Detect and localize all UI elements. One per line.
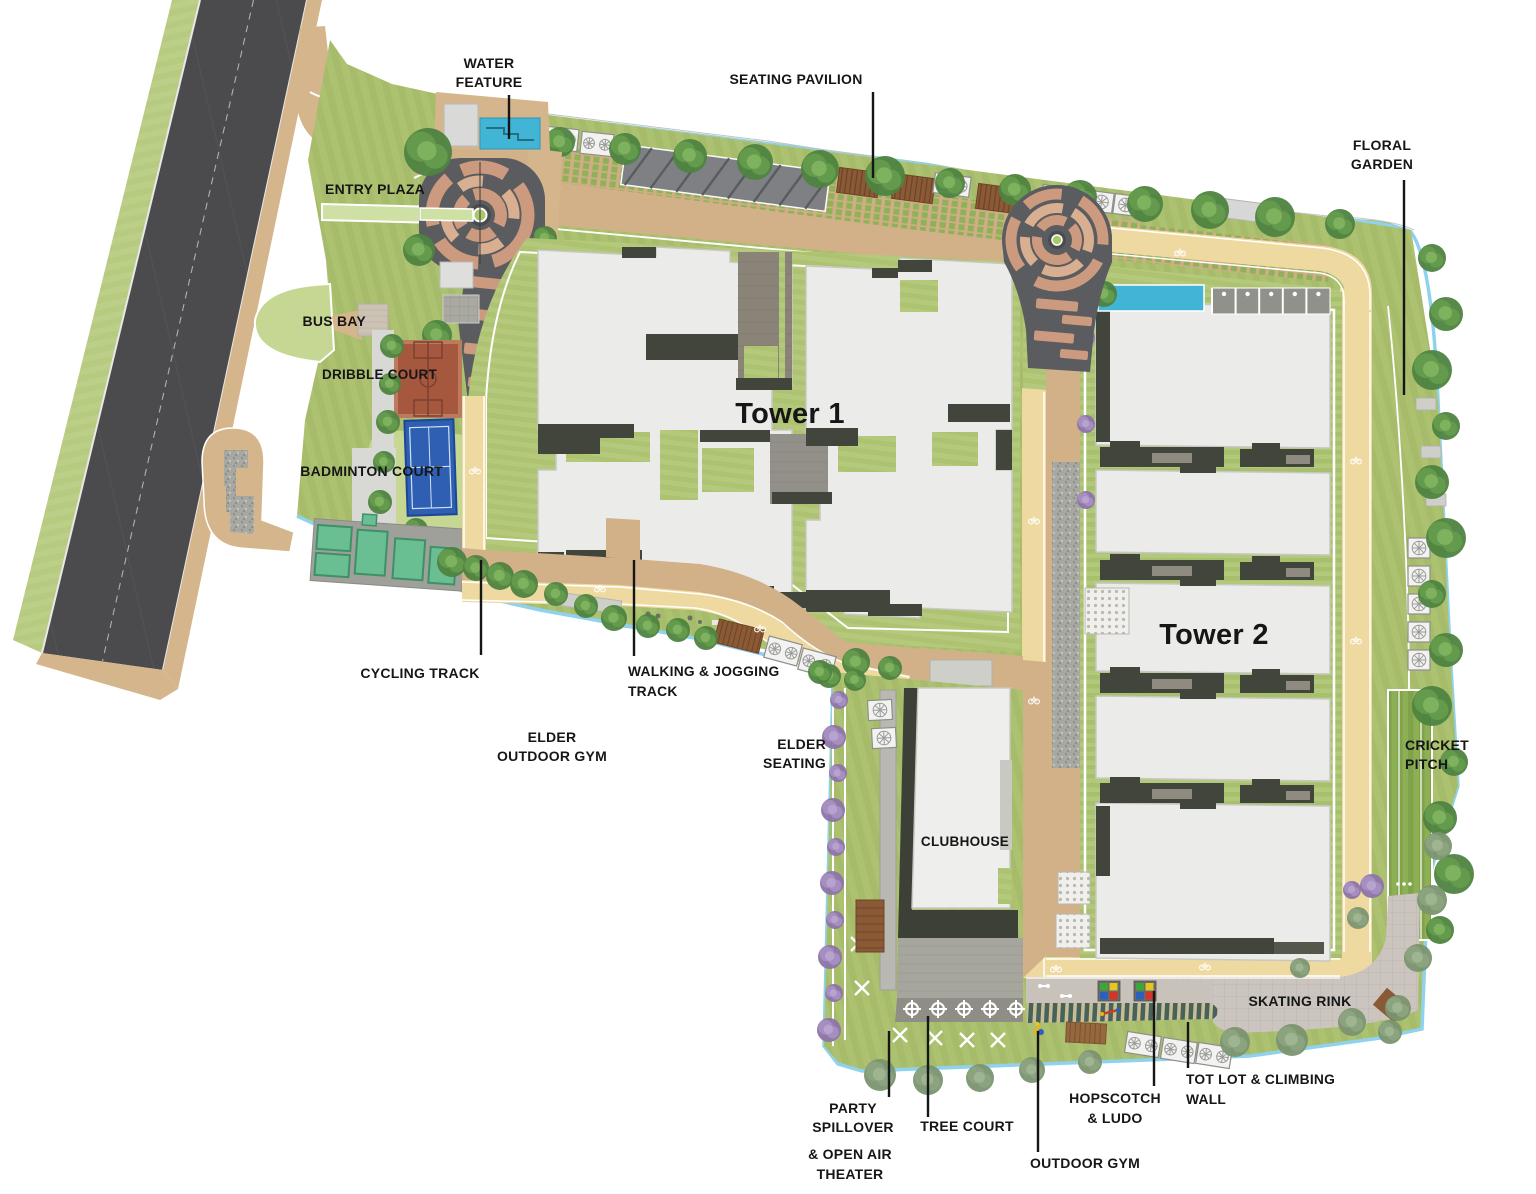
svg-text:DRIBBLE COURT: DRIBBLE COURT bbox=[322, 367, 437, 382]
svg-text:BUS BAY: BUS BAY bbox=[303, 313, 367, 329]
svg-text:& OPEN AIR: & OPEN AIR bbox=[808, 1146, 892, 1162]
svg-text:TOT LOT & CLIMBING: TOT LOT & CLIMBING bbox=[1186, 1072, 1335, 1087]
svg-text:FEATURE: FEATURE bbox=[456, 74, 523, 90]
svg-text:HOPSCOTCH: HOPSCOTCH bbox=[1069, 1090, 1161, 1106]
svg-text:TRACK: TRACK bbox=[628, 684, 678, 699]
svg-text:TREE COURT: TREE COURT bbox=[920, 1118, 1014, 1134]
svg-text:WATER: WATER bbox=[464, 55, 515, 71]
svg-text:SPILLOVER: SPILLOVER bbox=[812, 1119, 894, 1135]
svg-text:WALKING & JOGGING: WALKING & JOGGING bbox=[628, 664, 779, 679]
svg-text:BADMINTON COURT: BADMINTON COURT bbox=[300, 463, 443, 479]
svg-text:WALL: WALL bbox=[1186, 1092, 1226, 1107]
svg-text:FLORAL: FLORAL bbox=[1353, 137, 1411, 153]
svg-text:THEATER: THEATER bbox=[817, 1166, 884, 1182]
svg-text:ELDER: ELDER bbox=[777, 736, 826, 752]
svg-text:CLUBHOUSE: CLUBHOUSE bbox=[921, 834, 1009, 849]
svg-text:& LUDO: & LUDO bbox=[1087, 1110, 1142, 1126]
svg-text:SEATING PAVILION: SEATING PAVILION bbox=[729, 71, 862, 87]
svg-text:Tower 2: Tower 2 bbox=[1159, 619, 1269, 651]
svg-text:PITCH: PITCH bbox=[1405, 756, 1448, 772]
svg-text:ENTRY PLAZA: ENTRY PLAZA bbox=[325, 181, 425, 197]
svg-text:CYCLING TRACK: CYCLING TRACK bbox=[360, 665, 479, 681]
svg-text:OUTDOOR GYM: OUTDOOR GYM bbox=[497, 748, 607, 764]
svg-text:CRICKET: CRICKET bbox=[1405, 737, 1469, 753]
svg-text:ELDER: ELDER bbox=[528, 729, 577, 745]
svg-text:PARTY: PARTY bbox=[829, 1100, 877, 1116]
svg-text:SEATING: SEATING bbox=[763, 755, 826, 771]
svg-text:OUTDOOR GYM: OUTDOOR GYM bbox=[1030, 1155, 1140, 1171]
svg-text:GARDEN: GARDEN bbox=[1351, 156, 1413, 172]
svg-text:SKATING RINK: SKATING RINK bbox=[1248, 993, 1351, 1009]
svg-text:Tower 1: Tower 1 bbox=[735, 398, 845, 430]
